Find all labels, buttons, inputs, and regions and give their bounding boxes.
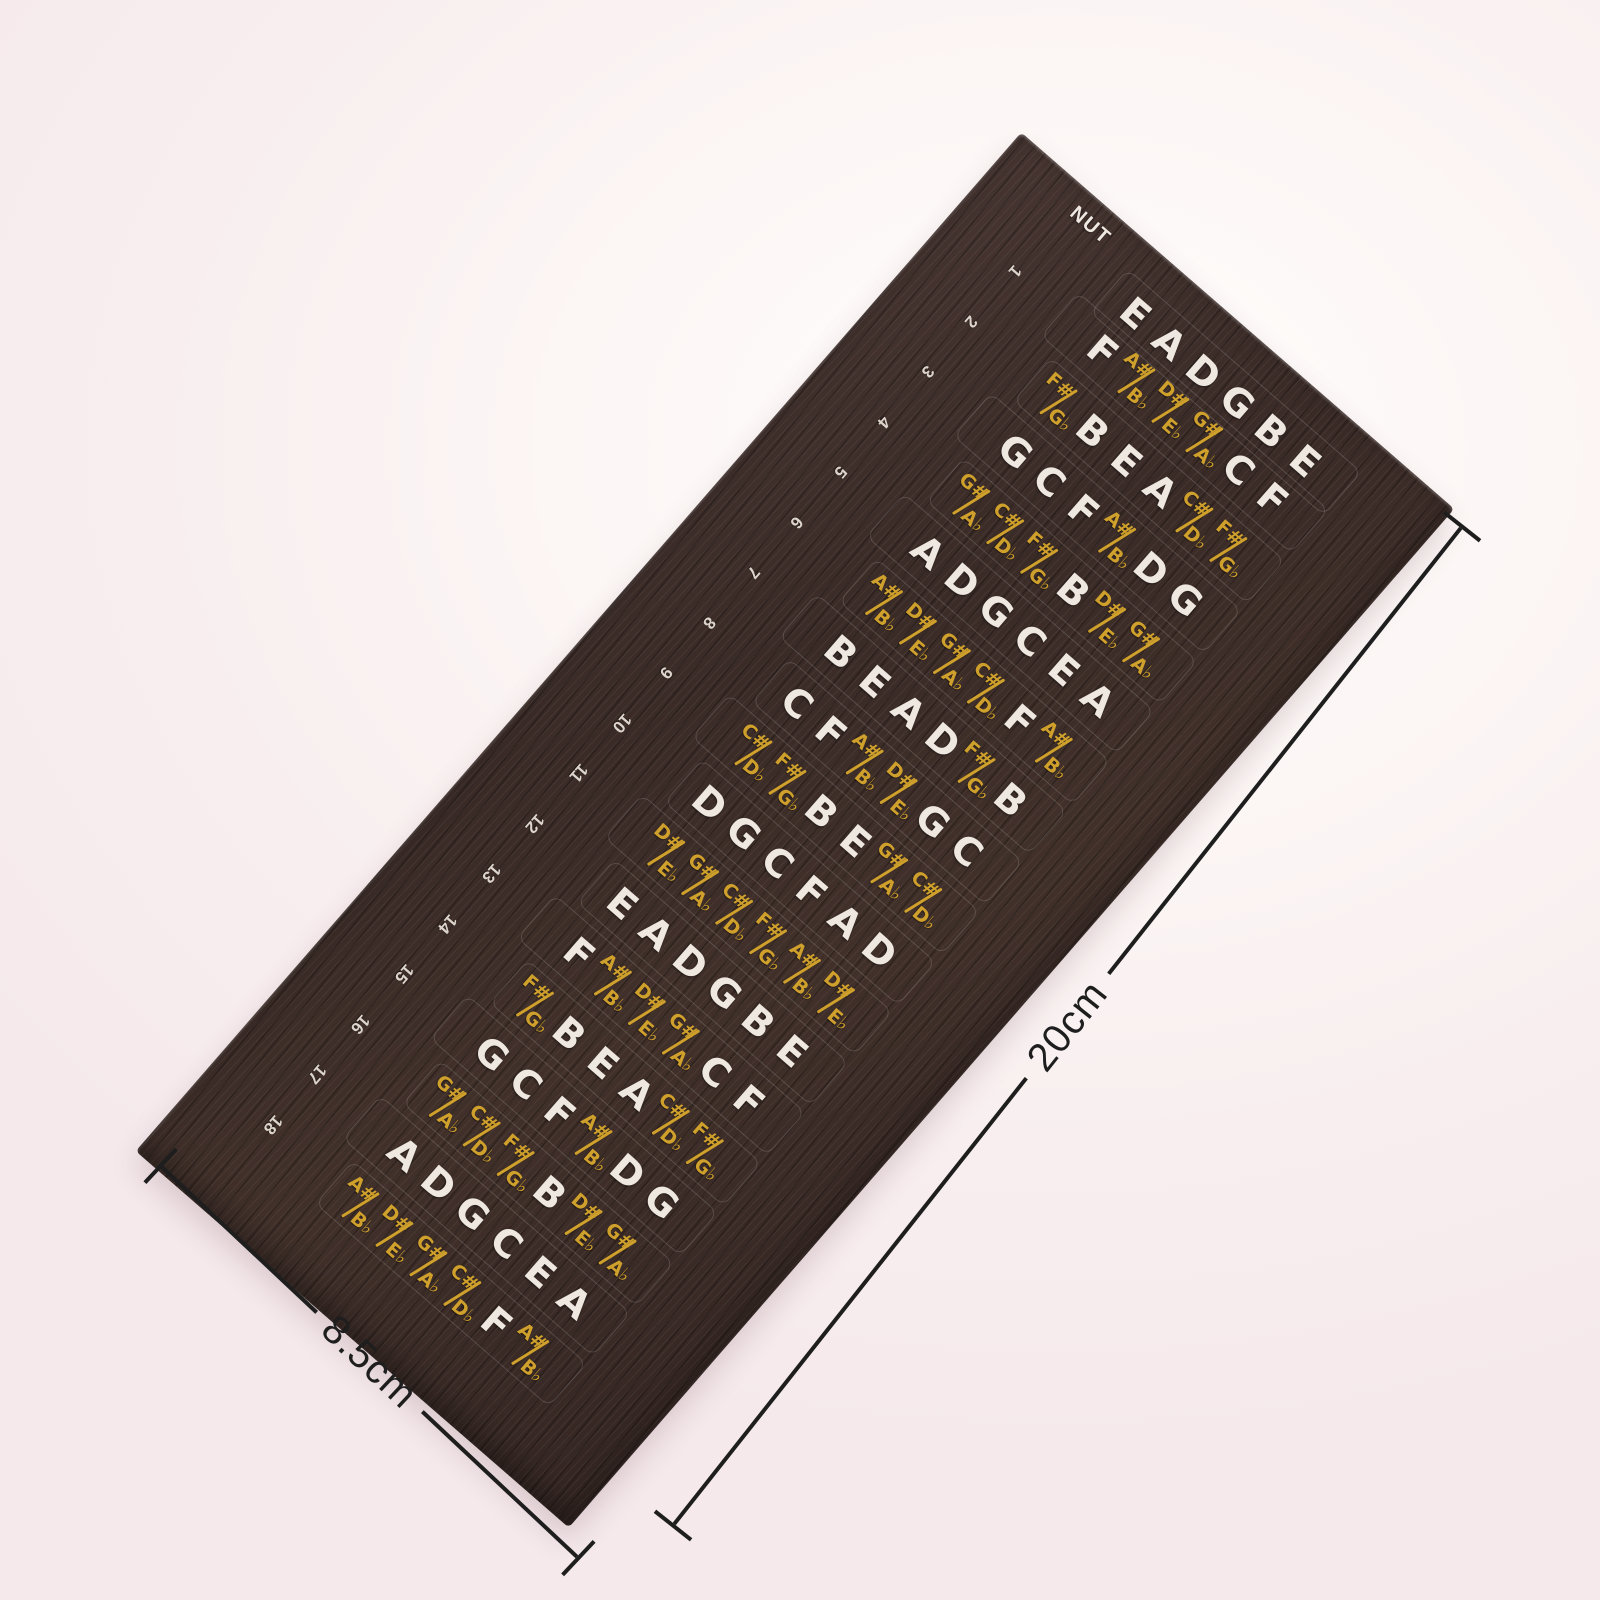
natural-note-label: E: [768, 1026, 816, 1076]
product-photo-scene: NUT 123456789101112131415161718 EADGBEFA…: [0, 0, 1600, 1600]
dimension-tick: [1443, 511, 1482, 543]
natural-note-label: C: [942, 824, 992, 876]
dimension-tick: [654, 1510, 693, 1542]
natural-note-label: F: [725, 1076, 773, 1126]
note-grid: EADGBEFA#B♭D#E♭G#A♭CFF#G♭BEAC#D♭F#G♭GCFA…: [1021, 132, 1454, 509]
natural-note-label: F: [1248, 474, 1296, 524]
